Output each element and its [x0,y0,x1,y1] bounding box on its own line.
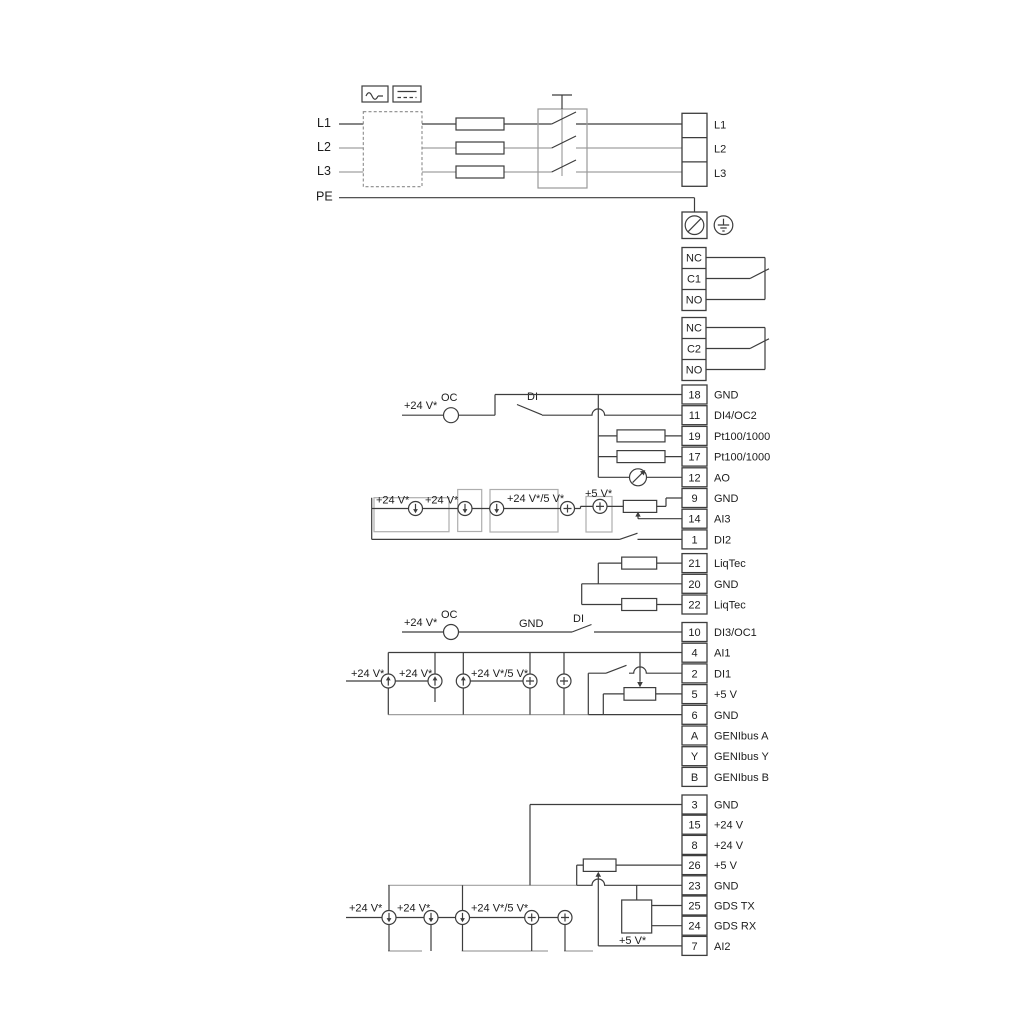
terminal-number: A [691,731,699,743]
arrowheads [386,470,645,922]
terminal-number: 19 [688,431,700,443]
wire [346,653,682,715]
terminal-number: Y [691,751,699,763]
v24-label: +24 V* [404,400,438,412]
terminal-label: GND [714,390,739,402]
out-label-l3: L3 [714,168,726,180]
terminal-number: 24 [688,921,700,933]
terminal-number: 1 [691,534,697,546]
terminal-label: GND [714,493,739,505]
terminal-label: Pt100/1000 [714,452,770,464]
terminal-number: 11 [689,410,700,422]
resistor-icon [622,557,657,569]
terminal-label: GND [714,579,739,591]
terminal-label: +5 V [714,689,738,701]
terminal-label: AI2 [714,941,731,953]
v5-label: +5 V* [619,935,647,947]
terminal-number: 22 [688,600,700,612]
relay-output-1: NC C1 NO [682,248,769,311]
v24-label: +24 V* [349,903,383,915]
out-label-l1: L1 [714,119,726,131]
terminal-label: +24 V [714,840,744,852]
terminal-number: 12 [688,472,700,484]
terminal-label: GENIbus B [714,772,769,784]
v24-label: +24 V* [376,495,410,507]
terminal-number: 9 [691,493,697,505]
terminal-block-power: L1 L2 L3 [682,113,726,186]
section-ai3-di2: +24 V* +24 V* +24 V*/5 V* +5 V* [372,488,682,539]
switch-handle [552,95,572,109]
resistor-icon [617,451,665,463]
relay1-contact [706,258,769,300]
line-label-pe: PE [316,190,333,204]
terminal-label: DI1 [714,668,731,680]
relay2-c2: C2 [687,343,701,355]
terminal-label: GENIbus A [714,731,769,743]
terminal-label: DI3/OC1 [714,627,757,639]
terminal-label: GENIbus Y [714,751,769,763]
gds-sensor-box [622,900,652,933]
line-label-l1: L1 [317,116,331,130]
di-label: DI [573,613,584,625]
terminal-label: +24 V [714,820,744,832]
potentiometer-icon [583,859,616,871]
oc-label: OC [441,392,458,404]
v24-v5-label: +24 V*/5 V* [471,668,529,680]
terminal-label: AO [714,472,730,484]
power-input-section: L1 L2 L3 PE L1 L2 L3 [316,86,733,239]
potentiometer-icon [623,500,656,512]
terminal-label: GDS TX [714,901,755,913]
terminal-block-power-box [682,113,707,186]
fuse-icon [456,118,504,130]
terminal-number: 20 [688,579,700,591]
relay2-contact [706,328,769,370]
terminal-number: 3 [691,800,697,812]
relay-output-2: NC C2 NO [682,318,769,381]
relay1-no: NO [686,294,703,306]
terminal-label: DI4/OC2 [714,410,757,422]
terminal-number: 7 [691,941,697,953]
v5-label: +5 V* [585,488,613,500]
terminal-label: GDS RX [714,921,757,933]
terminal-number: 21 [688,558,700,570]
relay2-nc: NC [686,322,702,334]
terminal-number: 14 [688,514,700,526]
terminal-number: 8 [691,840,697,852]
di-label: DI [527,391,538,403]
terminal-number: 23 [688,880,700,892]
v24-label: +24 V* [404,617,438,629]
terminal-number: B [691,772,698,784]
line-label-l3: L3 [317,164,331,178]
fuse-icon [456,142,504,154]
v24-label: +24 V* [425,495,459,507]
section-ai2-gds: +24 V* +24 V* +24 V*/5 V* +5 V* [346,805,682,952]
terminal-number: 15 [688,820,700,832]
terminal-label: Pt100/1000 [714,431,770,443]
open-collector-icon [444,625,459,640]
out-label-l2: L2 [714,144,726,156]
relay1-c1: C1 [687,273,701,285]
dc-symbol-icon [393,86,421,102]
terminal-label: AI3 [714,514,731,526]
terminal-number: 26 [688,860,700,872]
fuse-icon [456,166,504,178]
terminal-number: 6 [691,710,697,722]
terminal-number: 25 [688,901,700,913]
terminal-label: GND [714,710,739,722]
resistor-icon [622,599,657,611]
terminal-number: 10 [688,627,700,639]
switch-blades [552,112,576,172]
wire [339,124,695,212]
terminal-number: 17 [688,452,700,464]
v24-v5-label: +24 V*/5 V* [507,493,565,505]
terminal-label: LiqTec [714,600,746,612]
terminal-number: 2 [691,668,697,680]
relay1-nc: NC [686,252,702,264]
terminal-label: LiqTec [714,558,746,570]
terminal-label: GND [714,880,739,892]
wiring-diagram: L1 L2 L3 PE L1 L2 L3 [0,0,1024,1024]
pe-terminal-icon [682,212,707,239]
potentiometer-icon [624,688,656,701]
gnd-label: GND [519,618,544,630]
earth-icon [714,216,733,235]
section-liqtec [582,557,682,610]
open-collector-icon [444,408,459,423]
terminal-number: 5 [691,689,697,701]
line-label-l2: L2 [317,140,331,154]
relay2-no: NO [686,364,703,376]
terminal-label: AI1 [714,648,731,660]
v24-label: +24 V* [351,668,385,680]
wire [339,109,682,176]
filter-box [363,112,422,187]
terminal-label: GND [714,800,739,812]
v24-v5-label: +24 V*/5 V* [471,903,529,915]
section-ai1-di1: +24 V* +24 V* +24 V*/5 V* [346,653,682,715]
terminal-strip: 18GND11DI4/OC219Pt100/100017Pt100/100012… [682,385,770,955]
resistor-icon [617,430,665,442]
terminal-label: +5 V [714,860,738,872]
oc-label: OC [441,609,458,621]
terminal-label: DI2 [714,534,731,546]
terminal-number: 18 [688,390,700,402]
section-di3: +24 V* OC GND DI [402,609,682,640]
terminal-number: 4 [691,648,697,660]
